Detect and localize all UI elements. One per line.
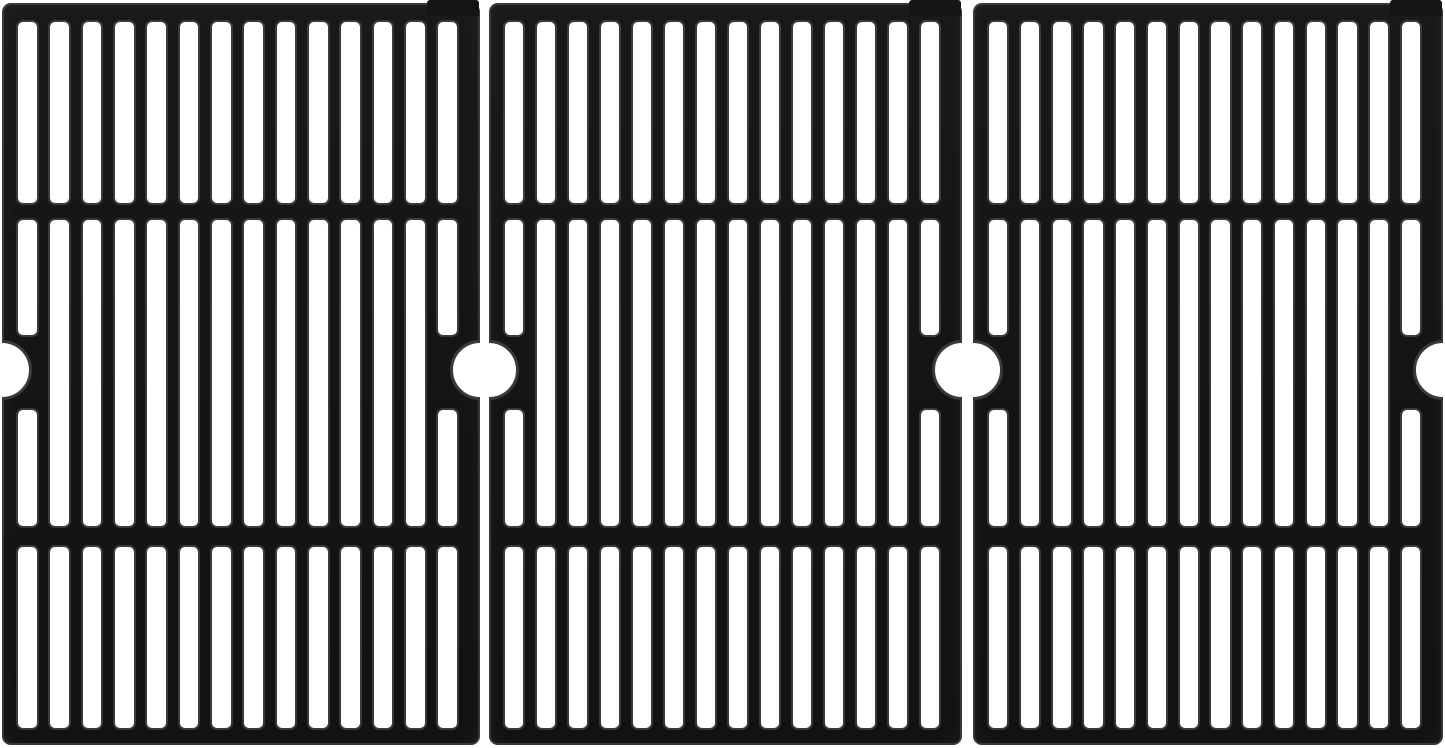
grate-slot — [791, 20, 813, 205]
grate-slot — [48, 218, 71, 528]
grate-slot — [1305, 20, 1327, 205]
mounting-notch-right — [450, 340, 480, 400]
grate-slot — [631, 545, 653, 730]
grate-slot — [436, 408, 459, 528]
grate-slot — [919, 408, 941, 528]
mounting-notch-left — [973, 340, 1003, 400]
frame-corner-tab — [1390, 0, 1442, 16]
grate-slot — [1336, 20, 1358, 205]
grate-slot — [210, 545, 233, 730]
grate-slot — [81, 545, 104, 730]
grate-slot — [404, 545, 427, 730]
grate-slot — [1241, 218, 1263, 528]
grate-slot — [1082, 545, 1104, 730]
grate-slot — [535, 218, 557, 528]
grate-slot — [242, 545, 265, 730]
grate-slot — [1241, 545, 1263, 730]
grate-slot — [599, 20, 621, 205]
grate-slot — [1400, 408, 1422, 528]
grate-slot — [919, 20, 941, 205]
grate-slot — [1336, 218, 1358, 528]
mounting-notch-right — [1413, 340, 1443, 400]
grate-slot — [1146, 218, 1168, 528]
grate-slot — [1051, 20, 1073, 205]
grate-slot — [1209, 218, 1231, 528]
grate-slot — [599, 218, 621, 528]
grate-slot — [307, 218, 330, 528]
grate-slot — [1273, 545, 1295, 730]
grate-slot — [791, 545, 813, 730]
grate-slot — [1305, 545, 1327, 730]
grate-slot — [567, 20, 589, 205]
grate-slot — [372, 545, 395, 730]
grate-slot — [307, 545, 330, 730]
grate-slot — [695, 20, 717, 205]
grate-slot — [307, 20, 330, 205]
grate-slot — [987, 408, 1009, 528]
grate-slot — [663, 20, 685, 205]
grate-slot — [887, 218, 909, 528]
grate-slot — [535, 545, 557, 730]
grate-slot — [919, 545, 941, 730]
grate-slot — [695, 545, 717, 730]
grate-slot — [1114, 545, 1136, 730]
grate-slot — [178, 20, 201, 205]
grate-slot — [339, 545, 362, 730]
grate-slot — [1209, 545, 1231, 730]
grate-slot — [16, 218, 39, 337]
grate-panel-right — [973, 3, 1443, 745]
grate-slot — [1051, 545, 1073, 730]
grate-slot — [759, 545, 781, 730]
grate-slot — [1400, 20, 1422, 205]
grate-slot — [663, 545, 685, 730]
grate-slot — [855, 218, 877, 528]
grate-slot — [1146, 545, 1168, 730]
grate-slot — [339, 20, 362, 205]
grate-slot — [631, 218, 653, 528]
grate-slot — [1273, 218, 1295, 528]
grate-slot — [178, 218, 201, 528]
grate-slot — [823, 545, 845, 730]
grate-slot — [145, 20, 168, 205]
grate-slot — [16, 408, 39, 528]
grate-slot — [210, 20, 233, 205]
grate-slot — [987, 20, 1009, 205]
grate-slot — [210, 218, 233, 528]
grate-slot — [1146, 20, 1168, 205]
grate-slot — [1051, 218, 1073, 528]
grate-slot — [1178, 545, 1200, 730]
grate-slot — [987, 218, 1009, 337]
grate-slot — [727, 218, 749, 528]
grate-slot — [1114, 20, 1136, 205]
grate-slot — [436, 20, 459, 205]
grate-slot — [372, 20, 395, 205]
mounting-notch-right — [932, 340, 962, 400]
grate-slot — [503, 408, 525, 528]
mounting-notch-left — [489, 340, 519, 400]
grate-slot — [81, 20, 104, 205]
grate-slot — [855, 545, 877, 730]
grate-slot — [145, 218, 168, 528]
grate-slot — [436, 218, 459, 337]
grate-slot — [242, 218, 265, 528]
grate-slot — [372, 218, 395, 528]
grate-slot — [695, 218, 717, 528]
grate-slot — [759, 218, 781, 528]
grate-slot — [339, 218, 362, 528]
grate-slot — [81, 218, 104, 528]
product-photo-grill-grates — [0, 0, 1445, 748]
grate-slot — [113, 545, 136, 730]
grate-slot — [1241, 20, 1263, 205]
grate-slot — [727, 545, 749, 730]
grate-slot — [759, 20, 781, 205]
grate-slot — [503, 218, 525, 337]
grate-slot — [16, 20, 39, 205]
grate-slot — [1368, 545, 1390, 730]
frame-corner-tab — [427, 0, 479, 16]
grate-slot — [48, 545, 71, 730]
grate-slot — [178, 545, 201, 730]
mounting-notch-left — [2, 340, 32, 400]
grate-slot — [1336, 545, 1358, 730]
grate-slot — [1368, 20, 1390, 205]
grate-slot — [1082, 20, 1104, 205]
grate-slot — [1019, 20, 1041, 205]
grate-slot — [823, 20, 845, 205]
grate-slot — [823, 218, 845, 528]
grate-slot — [855, 20, 877, 205]
frame-corner-tab — [909, 0, 961, 16]
grate-slot — [631, 20, 653, 205]
grate-slot — [1400, 218, 1422, 337]
grate-slot — [727, 20, 749, 205]
grate-panel-left — [2, 3, 480, 745]
grate-slot — [113, 218, 136, 528]
grate-slot — [567, 545, 589, 730]
grate-slot — [1178, 218, 1200, 528]
grate-slot — [503, 20, 525, 205]
grate-slot — [1368, 218, 1390, 528]
grate-slot — [48, 20, 71, 205]
grate-slot — [987, 545, 1009, 730]
grate-slot — [1273, 20, 1295, 205]
grate-slot — [145, 545, 168, 730]
grate-slot — [242, 20, 265, 205]
grate-slot — [1114, 218, 1136, 528]
grate-slot — [1305, 218, 1327, 528]
grate-slot — [1019, 545, 1041, 730]
grate-slot — [567, 218, 589, 528]
grate-slot — [275, 20, 298, 205]
grate-slot — [1082, 218, 1104, 528]
grate-slot — [503, 545, 525, 730]
grate-slot — [535, 20, 557, 205]
grate-slot — [275, 218, 298, 528]
grate-slot — [1178, 20, 1200, 205]
grate-slot — [919, 218, 941, 337]
grate-slot — [887, 20, 909, 205]
grate-slot — [113, 20, 136, 205]
grate-slot — [16, 545, 39, 730]
grate-slot — [404, 20, 427, 205]
grate-slot — [1400, 545, 1422, 730]
grate-slot — [436, 545, 459, 730]
grate-panel-center — [489, 3, 962, 745]
grate-slot — [887, 545, 909, 730]
grate-slot — [663, 218, 685, 528]
grate-slot — [1019, 218, 1041, 528]
grate-slot — [1209, 20, 1231, 205]
grate-slot — [791, 218, 813, 528]
grate-slot — [404, 218, 427, 528]
grate-slot — [275, 545, 298, 730]
grate-slot — [599, 545, 621, 730]
